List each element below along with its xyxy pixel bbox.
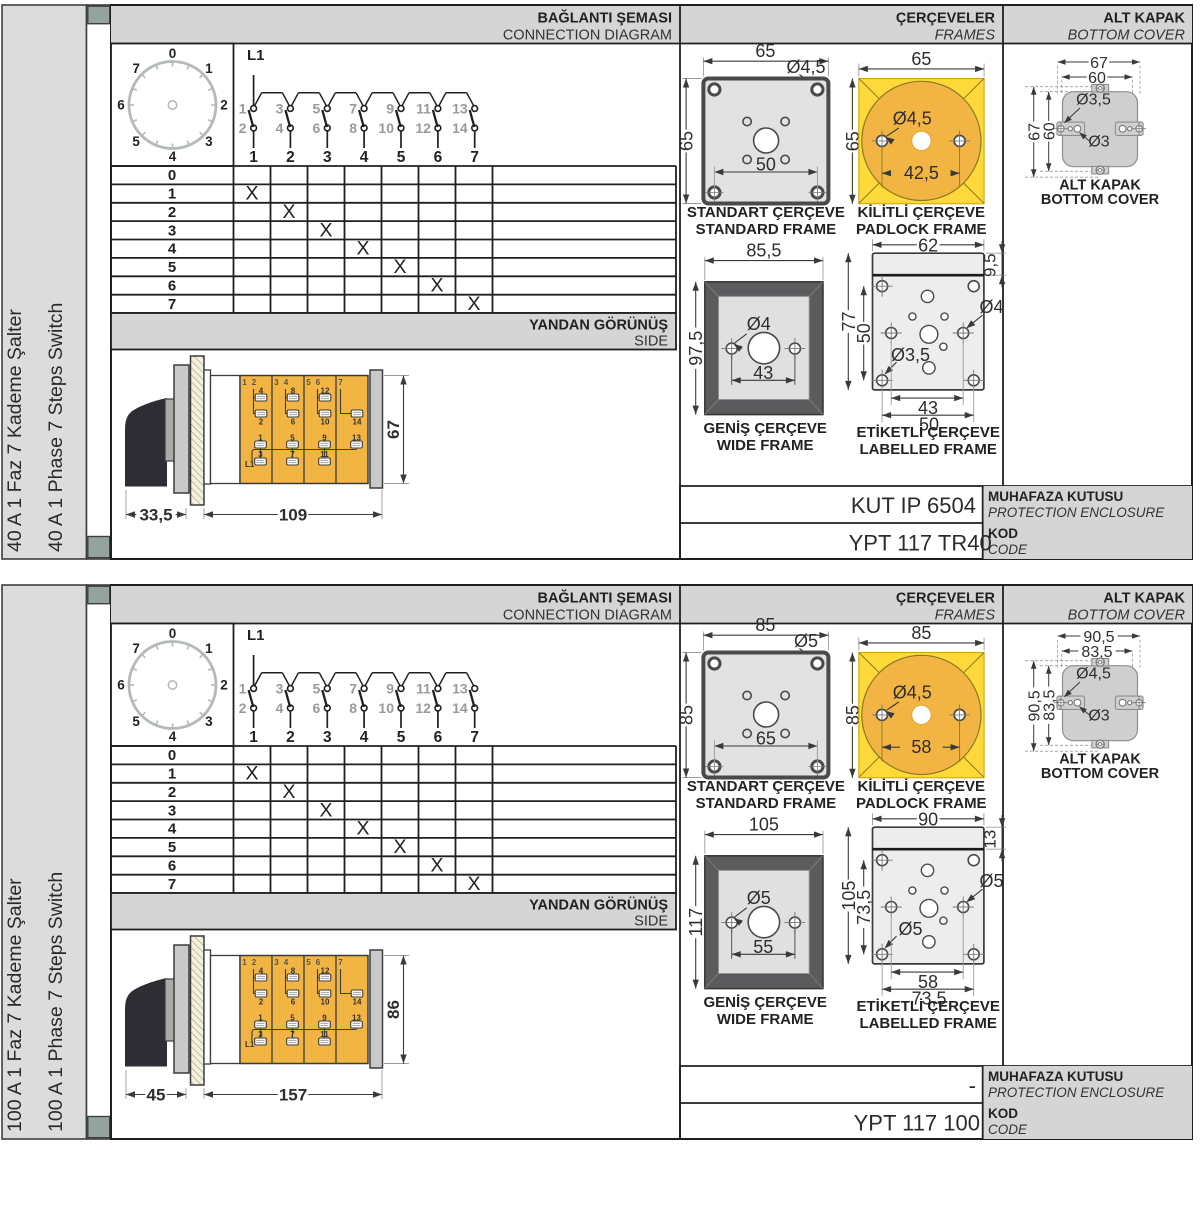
- svg-text:65: 65: [756, 729, 776, 749]
- svg-text:X: X: [356, 238, 369, 260]
- svg-text:7: 7: [132, 641, 140, 656]
- svg-text:3: 3: [168, 222, 176, 239]
- svg-text:4: 4: [169, 149, 177, 164]
- svg-text:GENİŞ ÇERÇEVE: GENİŞ ÇERÇEVE: [704, 420, 827, 437]
- svg-text:X: X: [319, 799, 332, 821]
- svg-text:86: 86: [384, 1000, 403, 1019]
- svg-text:X: X: [393, 836, 406, 858]
- svg-text:PROTECTION ENCLOSURE: PROTECTION ENCLOSURE: [988, 1085, 1165, 1100]
- svg-text:6: 6: [117, 98, 125, 113]
- svg-text:L1: L1: [247, 627, 265, 644]
- svg-text:KOD: KOD: [988, 1106, 1018, 1121]
- svg-text:50: 50: [854, 323, 874, 343]
- svg-text:85: 85: [911, 623, 931, 643]
- svg-text:2: 2: [259, 998, 264, 1007]
- svg-text:5: 5: [290, 434, 295, 443]
- svg-text:1: 1: [258, 434, 263, 443]
- svg-text:X: X: [430, 275, 443, 297]
- svg-text:12: 12: [321, 387, 330, 396]
- svg-text:4: 4: [168, 821, 177, 838]
- svg-text:STANDART ÇERÇEVE: STANDART ÇERÇEVE: [687, 204, 845, 221]
- svg-text:43: 43: [753, 363, 773, 383]
- svg-text:WIDE FRAME: WIDE FRAME: [717, 1011, 814, 1028]
- svg-text:3: 3: [276, 100, 284, 116]
- svg-text:83,5: 83,5: [1042, 690, 1059, 721]
- svg-text:1: 1: [168, 766, 176, 783]
- svg-text:9: 9: [322, 1014, 327, 1023]
- svg-text:13: 13: [452, 680, 468, 696]
- svg-text:12: 12: [415, 700, 431, 716]
- svg-text:5: 5: [313, 100, 321, 116]
- svg-text:0: 0: [168, 167, 176, 184]
- svg-text:7: 7: [349, 100, 357, 116]
- svg-text:2: 2: [220, 98, 228, 113]
- svg-text:5: 5: [397, 729, 406, 746]
- svg-text:STANDARD FRAME: STANDARD FRAME: [696, 221, 837, 238]
- svg-text:2: 2: [259, 418, 264, 427]
- svg-text:5: 5: [132, 134, 140, 149]
- svg-text:14: 14: [353, 418, 362, 427]
- svg-text:4: 4: [259, 387, 264, 396]
- svg-text:2: 2: [168, 784, 176, 801]
- svg-text:0: 0: [169, 46, 177, 61]
- svg-text:1: 1: [239, 680, 247, 696]
- svg-text:Ø4,5: Ø4,5: [893, 109, 932, 129]
- svg-text:2: 2: [220, 678, 228, 693]
- svg-text:X: X: [282, 781, 295, 803]
- svg-text:X: X: [430, 855, 443, 877]
- svg-text:4: 4: [276, 120, 284, 136]
- svg-text:12: 12: [321, 967, 330, 976]
- svg-text:117: 117: [686, 908, 706, 937]
- svg-text:100 A 1 Phase 7 Steps Switch: 100 A 1 Phase 7 Steps Switch: [45, 872, 67, 1132]
- svg-text:X: X: [356, 818, 369, 840]
- svg-text:2: 2: [168, 204, 176, 221]
- svg-text:CODE: CODE: [988, 542, 1028, 557]
- svg-text:3: 3: [323, 149, 332, 166]
- svg-text:13: 13: [352, 1014, 361, 1023]
- svg-text:ETİKETLİ ÇERÇEVE: ETİKETLİ ÇERÇEVE: [857, 998, 1000, 1015]
- svg-text:YANDAN GÖRÜNÜŞ: YANDAN GÖRÜNÜŞ: [529, 317, 668, 334]
- svg-text:PROTECTION ENCLOSURE: PROTECTION ENCLOSURE: [988, 505, 1165, 520]
- svg-text:3: 3: [274, 378, 279, 387]
- svg-text:BAĞLANTI ŞEMASI: BAĞLANTI ŞEMASI: [537, 9, 672, 27]
- svg-text:CONNECTION DIAGRAM: CONNECTION DIAGRAM: [503, 28, 672, 44]
- svg-text:5: 5: [290, 1014, 295, 1023]
- svg-text:0: 0: [169, 626, 177, 641]
- svg-text:58: 58: [911, 737, 931, 757]
- svg-text:6: 6: [291, 998, 296, 1007]
- svg-text:73,5: 73,5: [854, 890, 874, 925]
- svg-text:KİLİTLİ ÇERÇEVE: KİLİTLİ ÇERÇEVE: [858, 778, 986, 795]
- svg-text:4: 4: [259, 967, 264, 976]
- svg-text:7: 7: [168, 876, 176, 893]
- svg-text:Ø5: Ø5: [979, 871, 1003, 891]
- svg-text:13: 13: [980, 830, 999, 849]
- svg-text:10: 10: [321, 418, 330, 427]
- svg-text:7: 7: [349, 680, 357, 696]
- svg-text:YPT 117 100: YPT 117 100: [854, 1111, 980, 1136]
- svg-text:2: 2: [252, 378, 257, 387]
- svg-text:X: X: [245, 763, 258, 785]
- svg-text:4: 4: [169, 729, 177, 744]
- svg-text:GENİŞ ÇERÇEVE: GENİŞ ÇERÇEVE: [704, 994, 827, 1011]
- svg-text:ÇERÇEVELER: ÇERÇEVELER: [896, 591, 996, 607]
- svg-text:6: 6: [117, 678, 125, 693]
- svg-text:67: 67: [384, 420, 403, 439]
- svg-text:STANDARD FRAME: STANDARD FRAME: [696, 795, 837, 812]
- svg-text:KOD: KOD: [988, 526, 1018, 541]
- svg-text:85: 85: [755, 615, 775, 635]
- svg-text:14: 14: [353, 998, 362, 1007]
- svg-text:2: 2: [239, 700, 247, 716]
- svg-text:100 A 1 Faz 7 Kademe Şalter: 100 A 1 Faz 7 Kademe Şalter: [4, 878, 26, 1132]
- svg-text:1: 1: [249, 729, 258, 746]
- svg-text:1: 1: [205, 61, 213, 76]
- svg-text:Ø3,5: Ø3,5: [1076, 92, 1111, 109]
- svg-text:Ø5: Ø5: [747, 888, 771, 908]
- svg-text:3: 3: [323, 729, 332, 746]
- svg-text:7: 7: [338, 378, 343, 387]
- svg-text:8: 8: [349, 700, 357, 716]
- svg-text:Ø5: Ø5: [794, 631, 818, 651]
- svg-text:L1: L1: [245, 1040, 255, 1049]
- svg-text:0: 0: [168, 747, 176, 764]
- svg-text:3: 3: [276, 680, 284, 696]
- svg-text:4: 4: [360, 729, 369, 746]
- svg-text:CODE: CODE: [988, 1122, 1028, 1137]
- svg-text:1: 1: [205, 641, 213, 656]
- svg-text:9: 9: [322, 434, 327, 443]
- svg-text:-: -: [969, 1073, 976, 1098]
- svg-text:X: X: [393, 256, 406, 278]
- svg-text:2: 2: [252, 958, 257, 967]
- svg-text:Ø4,5: Ø4,5: [1076, 666, 1111, 683]
- svg-text:3: 3: [205, 714, 213, 729]
- svg-text:6: 6: [434, 729, 443, 746]
- svg-text:42,5: 42,5: [904, 163, 939, 183]
- svg-text:85: 85: [677, 705, 697, 725]
- svg-text:BOTTOM COVER: BOTTOM COVER: [1041, 766, 1160, 782]
- svg-text:4: 4: [284, 958, 289, 967]
- svg-text:BOTTOM COVER: BOTTOM COVER: [1068, 28, 1186, 44]
- svg-text:109: 109: [279, 506, 307, 525]
- svg-text:62: 62: [918, 235, 938, 255]
- svg-text:1: 1: [168, 186, 176, 203]
- svg-text:4: 4: [276, 700, 284, 716]
- svg-text:14: 14: [452, 700, 468, 716]
- svg-text:FRAMES: FRAMES: [935, 28, 996, 44]
- svg-text:BOTTOM COVER: BOTTOM COVER: [1068, 608, 1186, 624]
- svg-text:2: 2: [286, 149, 295, 166]
- svg-text:3: 3: [274, 958, 279, 967]
- svg-text:1: 1: [242, 958, 247, 967]
- svg-text:5: 5: [168, 839, 176, 856]
- svg-text:SIDE: SIDE: [634, 334, 668, 350]
- svg-text:4: 4: [168, 241, 177, 258]
- svg-text:X: X: [245, 183, 258, 205]
- svg-text:8: 8: [291, 387, 296, 396]
- svg-text:1: 1: [258, 1014, 263, 1023]
- svg-text:40 A 1 Phase 7 Steps Switch: 40 A 1 Phase 7 Steps Switch: [45, 303, 67, 552]
- svg-text:6: 6: [434, 149, 443, 166]
- svg-text:5: 5: [168, 259, 176, 276]
- svg-text:5: 5: [313, 680, 321, 696]
- svg-text:Ø4,5: Ø4,5: [786, 57, 825, 77]
- svg-text:KUT IP 6504: KUT IP 6504: [851, 493, 976, 518]
- svg-text:Ø5: Ø5: [898, 919, 922, 939]
- svg-text:Ø3: Ø3: [1088, 708, 1109, 725]
- svg-text:8: 8: [349, 120, 357, 136]
- svg-text:65: 65: [755, 41, 775, 61]
- svg-text:MUHAFAZA KUTUSU: MUHAFAZA KUTUSU: [988, 489, 1123, 504]
- svg-text:6: 6: [313, 700, 321, 716]
- svg-text:65: 65: [677, 131, 697, 151]
- svg-text:11: 11: [416, 680, 431, 696]
- svg-text:90: 90: [918, 809, 938, 829]
- svg-text:STANDART ÇERÇEVE: STANDART ÇERÇEVE: [687, 778, 845, 795]
- svg-text:10: 10: [378, 120, 394, 136]
- svg-text:7: 7: [168, 296, 176, 313]
- svg-text:9: 9: [386, 680, 394, 696]
- svg-text:5: 5: [306, 378, 311, 387]
- svg-text:85,5: 85,5: [746, 241, 781, 261]
- svg-text:50: 50: [756, 155, 776, 175]
- svg-text:YANDAN GÖRÜNÜŞ: YANDAN GÖRÜNÜŞ: [529, 897, 668, 914]
- svg-text:3: 3: [168, 802, 176, 819]
- svg-text:BOTTOM COVER: BOTTOM COVER: [1041, 192, 1160, 208]
- svg-text:ALT KAPAK: ALT KAPAK: [1103, 591, 1185, 607]
- svg-text:12: 12: [415, 120, 431, 136]
- svg-text:4: 4: [360, 149, 369, 166]
- svg-text:FRAMES: FRAMES: [935, 608, 996, 624]
- svg-text:4: 4: [284, 378, 289, 387]
- svg-text:11: 11: [416, 100, 431, 116]
- svg-text:13: 13: [452, 100, 468, 116]
- svg-text:5: 5: [397, 149, 406, 166]
- svg-text:Ø3: Ø3: [1088, 134, 1109, 151]
- svg-text:L1: L1: [245, 460, 255, 469]
- svg-text:10: 10: [378, 700, 394, 716]
- svg-text:X: X: [319, 219, 332, 241]
- svg-text:7: 7: [338, 958, 343, 967]
- svg-text:7: 7: [470, 729, 479, 746]
- svg-text:5: 5: [132, 714, 140, 729]
- svg-text:CONNECTION DIAGRAM: CONNECTION DIAGRAM: [503, 608, 672, 624]
- svg-text:SIDE: SIDE: [634, 914, 668, 930]
- svg-text:97,5: 97,5: [686, 331, 706, 366]
- svg-text:6: 6: [291, 418, 296, 427]
- svg-text:13: 13: [352, 434, 361, 443]
- svg-text:X: X: [467, 293, 480, 315]
- svg-text:BAĞLANTI ŞEMASI: BAĞLANTI ŞEMASI: [537, 589, 672, 607]
- svg-text:1: 1: [249, 149, 258, 166]
- svg-text:55: 55: [753, 937, 773, 957]
- svg-text:7: 7: [132, 61, 140, 76]
- svg-text:X: X: [282, 201, 295, 223]
- svg-text:L1: L1: [247, 47, 265, 64]
- svg-text:45: 45: [147, 1086, 166, 1105]
- svg-text:7: 7: [470, 149, 479, 166]
- svg-text:Ø4: Ø4: [979, 297, 1003, 317]
- svg-text:3: 3: [205, 134, 213, 149]
- svg-text:2: 2: [239, 120, 247, 136]
- svg-text:10: 10: [321, 998, 330, 1007]
- svg-text:X: X: [467, 873, 480, 895]
- svg-text:9,5: 9,5: [980, 253, 999, 277]
- svg-text:6: 6: [168, 858, 176, 875]
- svg-text:ALT KAPAK: ALT KAPAK: [1103, 11, 1185, 27]
- svg-text:157: 157: [279, 1086, 307, 1105]
- svg-text:6: 6: [313, 120, 321, 136]
- svg-text:40 A 1 Faz 7 Kademe Şalter: 40 A 1 Faz 7 Kademe Şalter: [4, 309, 26, 552]
- svg-text:KİLİTLİ ÇERÇEVE: KİLİTLİ ÇERÇEVE: [858, 204, 986, 221]
- svg-text:1: 1: [239, 100, 247, 116]
- svg-text:YPT 117 TR40: YPT 117 TR40: [849, 531, 992, 556]
- svg-text:WIDE FRAME: WIDE FRAME: [717, 437, 814, 454]
- svg-text:14: 14: [452, 120, 468, 136]
- svg-text:105: 105: [749, 815, 779, 835]
- svg-text:Ø3,5: Ø3,5: [891, 345, 930, 365]
- svg-text:ÇERÇEVELER: ÇERÇEVELER: [896, 11, 996, 27]
- svg-text:MUHAFAZA KUTUSU: MUHAFAZA KUTUSU: [988, 1069, 1123, 1084]
- svg-text:LABELLED FRAME: LABELLED FRAME: [859, 441, 997, 458]
- svg-text:Ø4: Ø4: [747, 314, 771, 334]
- svg-text:LABELLED FRAME: LABELLED FRAME: [859, 1015, 997, 1032]
- svg-text:Ø4,5: Ø4,5: [893, 683, 932, 703]
- svg-text:65: 65: [911, 49, 931, 69]
- svg-text:ETİKETLİ ÇERÇEVE: ETİKETLİ ÇERÇEVE: [857, 424, 1000, 441]
- svg-text:1: 1: [242, 378, 247, 387]
- svg-text:8: 8: [291, 967, 296, 976]
- svg-text:2: 2: [286, 729, 295, 746]
- svg-text:5: 5: [306, 958, 311, 967]
- svg-text:6: 6: [168, 278, 176, 295]
- svg-text:33,5: 33,5: [139, 506, 172, 525]
- svg-text:60: 60: [1042, 122, 1059, 140]
- svg-text:9: 9: [386, 100, 394, 116]
